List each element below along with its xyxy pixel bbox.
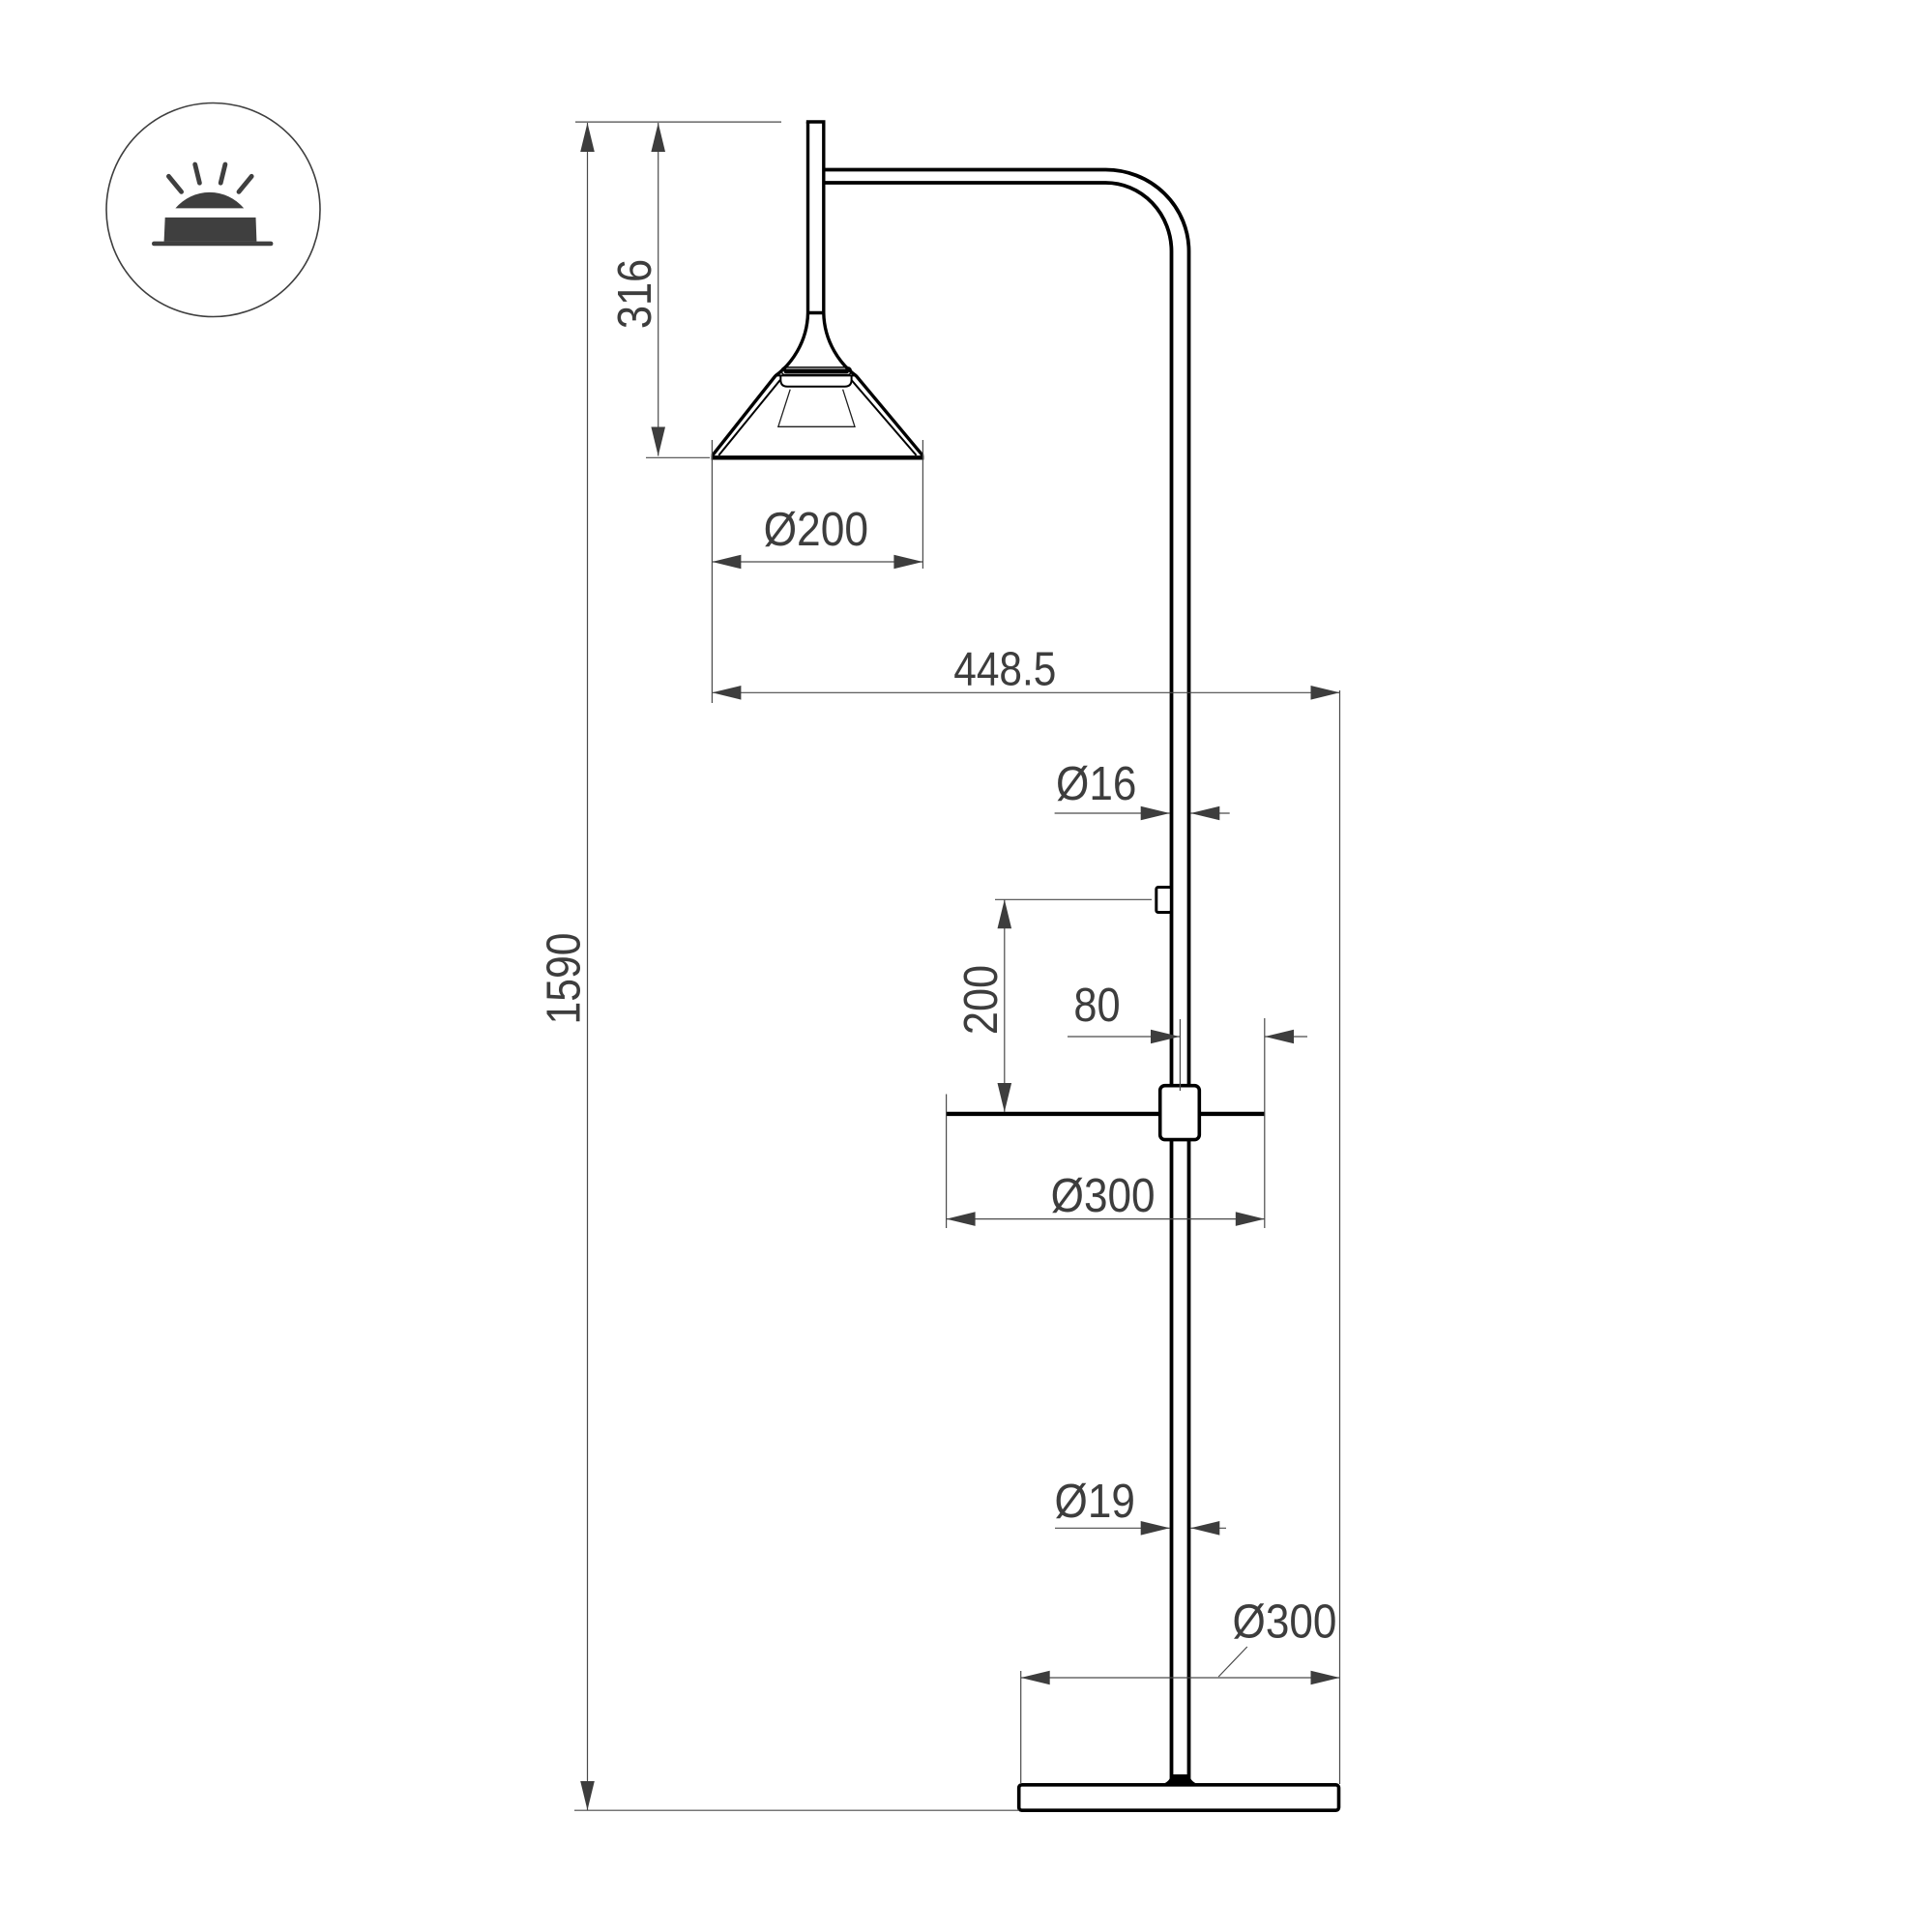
svg-text:Ø200: Ø200 bbox=[764, 503, 868, 556]
svg-text:Ø19: Ø19 bbox=[1055, 1475, 1135, 1528]
svg-text:Ø16: Ø16 bbox=[1056, 757, 1136, 810]
svg-text:Ø300: Ø300 bbox=[1233, 1595, 1337, 1648]
svg-text:200: 200 bbox=[954, 965, 1008, 1035]
svg-text:80: 80 bbox=[1073, 979, 1120, 1032]
svg-text:Ø300: Ø300 bbox=[1051, 1169, 1156, 1222]
svg-text:1590: 1590 bbox=[537, 933, 590, 1025]
svg-text:448.5: 448.5 bbox=[953, 643, 1056, 696]
svg-text:316: 316 bbox=[608, 259, 661, 329]
